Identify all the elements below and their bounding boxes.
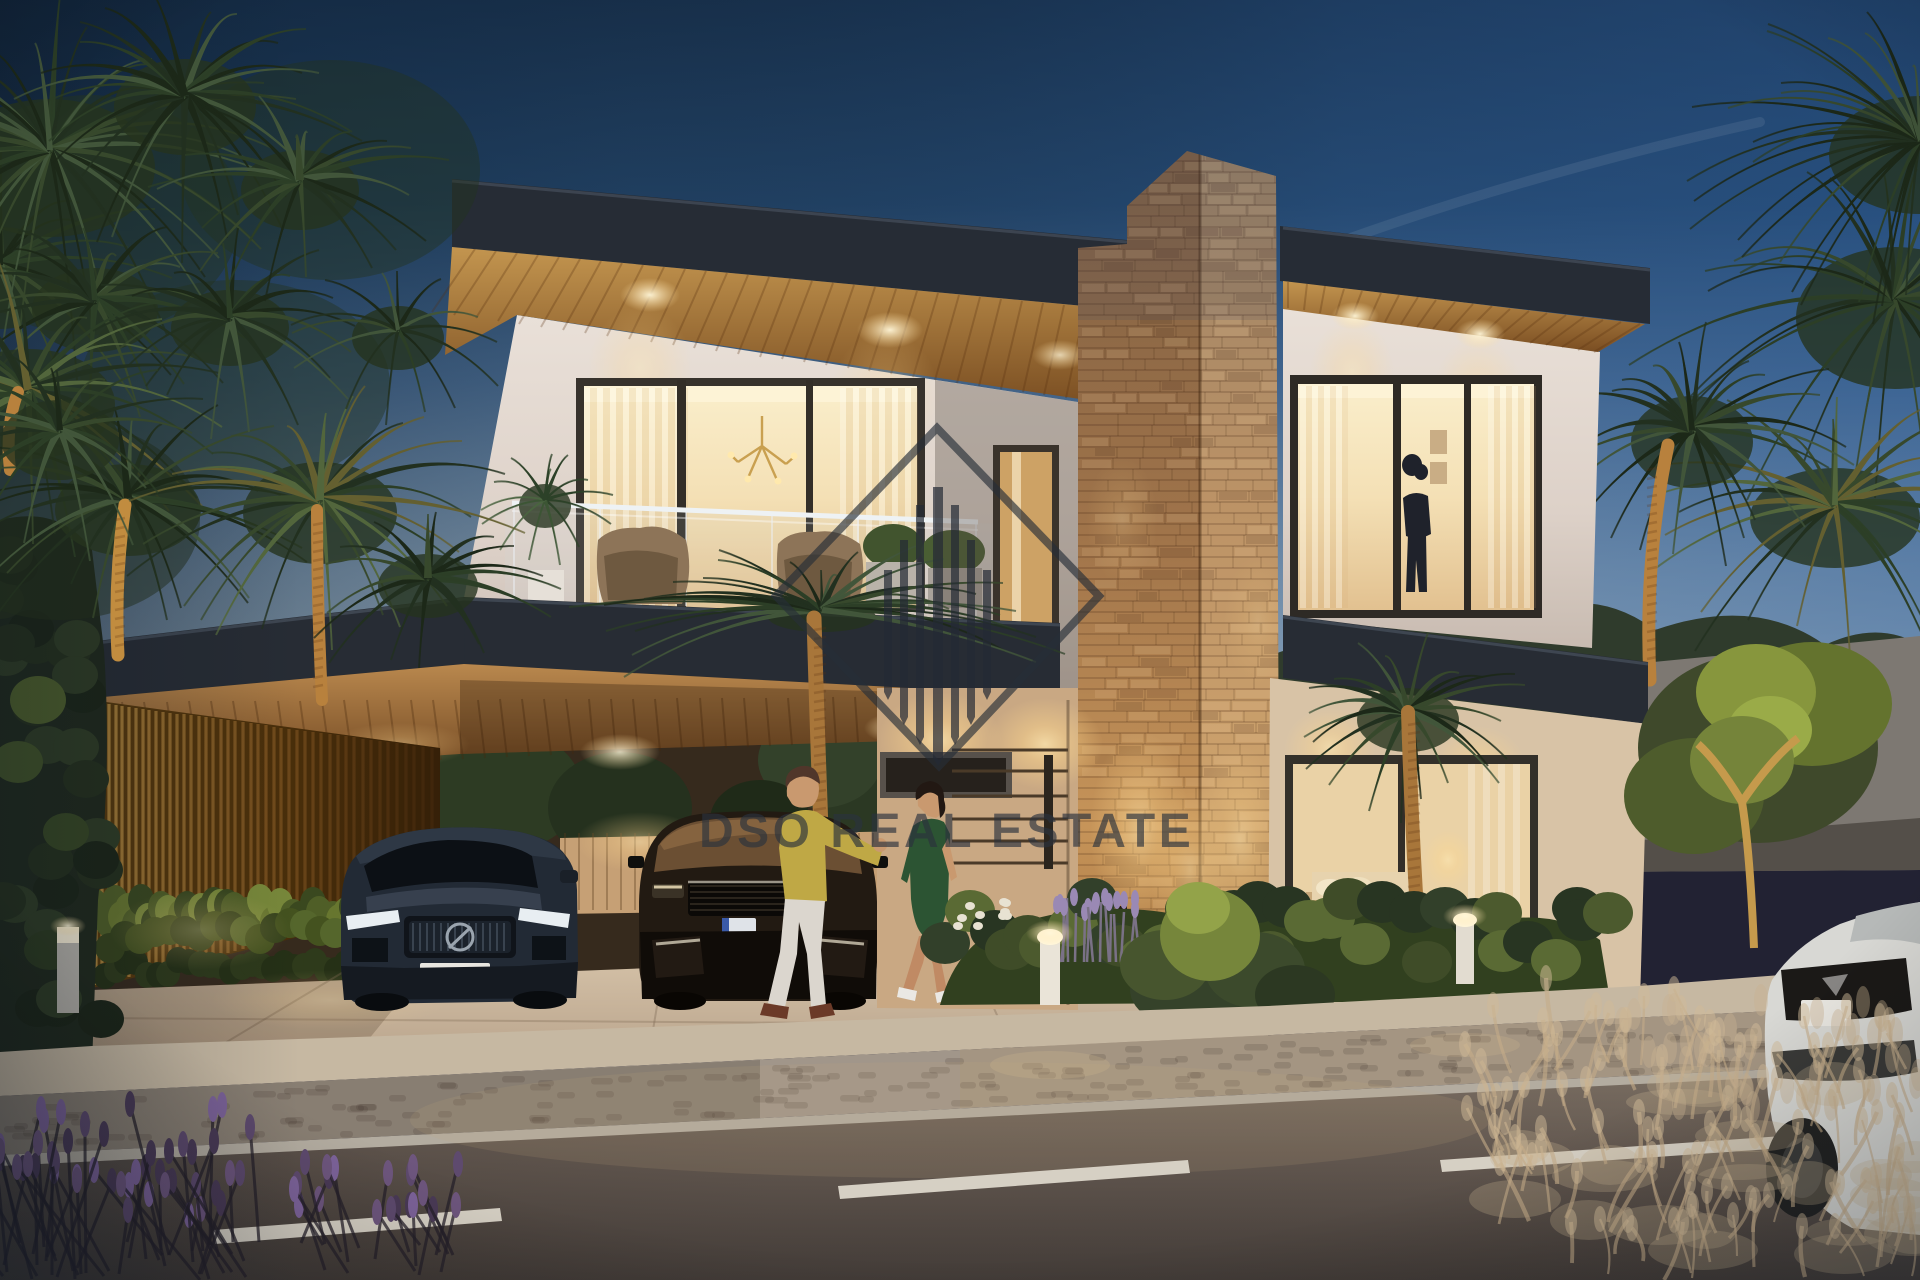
svg-text:DSO REAL ESTATE: DSO REAL ESTATE bbox=[699, 805, 1194, 858]
